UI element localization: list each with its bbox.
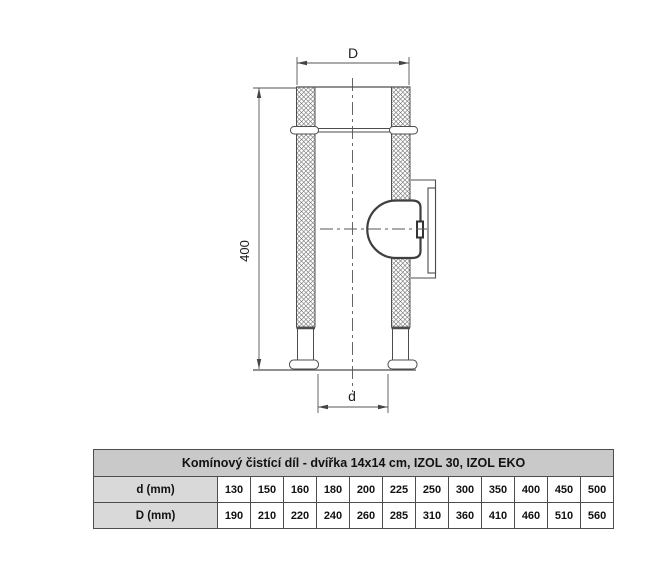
dimension-length: 400 (237, 88, 296, 369)
table-row-d: d (mm) 130 150 160 180 200 225 250 300 3… (94, 477, 614, 503)
table-cell: 350 (482, 477, 515, 503)
door-latch (417, 222, 423, 238)
dim-length-label: 400 (237, 240, 252, 262)
table-cell: 410 (482, 503, 515, 529)
table-cell: 260 (350, 503, 383, 529)
dimension-outer-diameter: D (297, 45, 409, 85)
table-title-row: Komínový čistící díl - dvířka 14x14 cm, … (94, 450, 614, 477)
table-cell: 220 (284, 503, 317, 529)
table-cell: 225 (383, 477, 416, 503)
insulation-left (297, 87, 316, 327)
row-label-d: d (mm) (94, 477, 218, 503)
table-cell: 560 (581, 503, 614, 529)
spigot-walls (298, 329, 409, 360)
technical-drawing: D 400 d (0, 0, 672, 445)
table-cell: 500 (581, 477, 614, 503)
row-label-D: D (mm) (94, 503, 218, 529)
table-cell: 130 (218, 477, 251, 503)
table-row-D: D (mm) 190 210 220 240 260 285 310 360 4… (94, 503, 614, 529)
table-cell: 250 (416, 477, 449, 503)
table-cell: 400 (515, 477, 548, 503)
table-cell: 240 (317, 503, 350, 529)
dim-outer-label: D (348, 45, 358, 61)
table-cell: 200 (350, 477, 383, 503)
table-cell: 450 (548, 477, 581, 503)
table-cell: 180 (317, 477, 350, 503)
table-cell: 150 (251, 477, 284, 503)
table-cell: 460 (515, 503, 548, 529)
dim-inner-label: d (348, 388, 356, 404)
spec-table: Komínový čistící díl - dvířka 14x14 cm, … (93, 449, 614, 529)
dimension-inner-diameter: d (318, 374, 388, 413)
table-cell: 510 (548, 503, 581, 529)
door-frame-flange (428, 188, 436, 273)
table-cell: 160 (284, 477, 317, 503)
bead-ring-bottom (290, 360, 418, 369)
table-cell: 360 (449, 503, 482, 529)
table-cell: 310 (416, 503, 449, 529)
table-cell: 190 (218, 503, 251, 529)
table-cell: 285 (383, 503, 416, 529)
table-cell: 210 (251, 503, 284, 529)
bead-ring-top (291, 127, 418, 135)
table-title: Komínový čistící díl - dvířka 14x14 cm, … (94, 450, 614, 477)
table-cell: 300 (449, 477, 482, 503)
